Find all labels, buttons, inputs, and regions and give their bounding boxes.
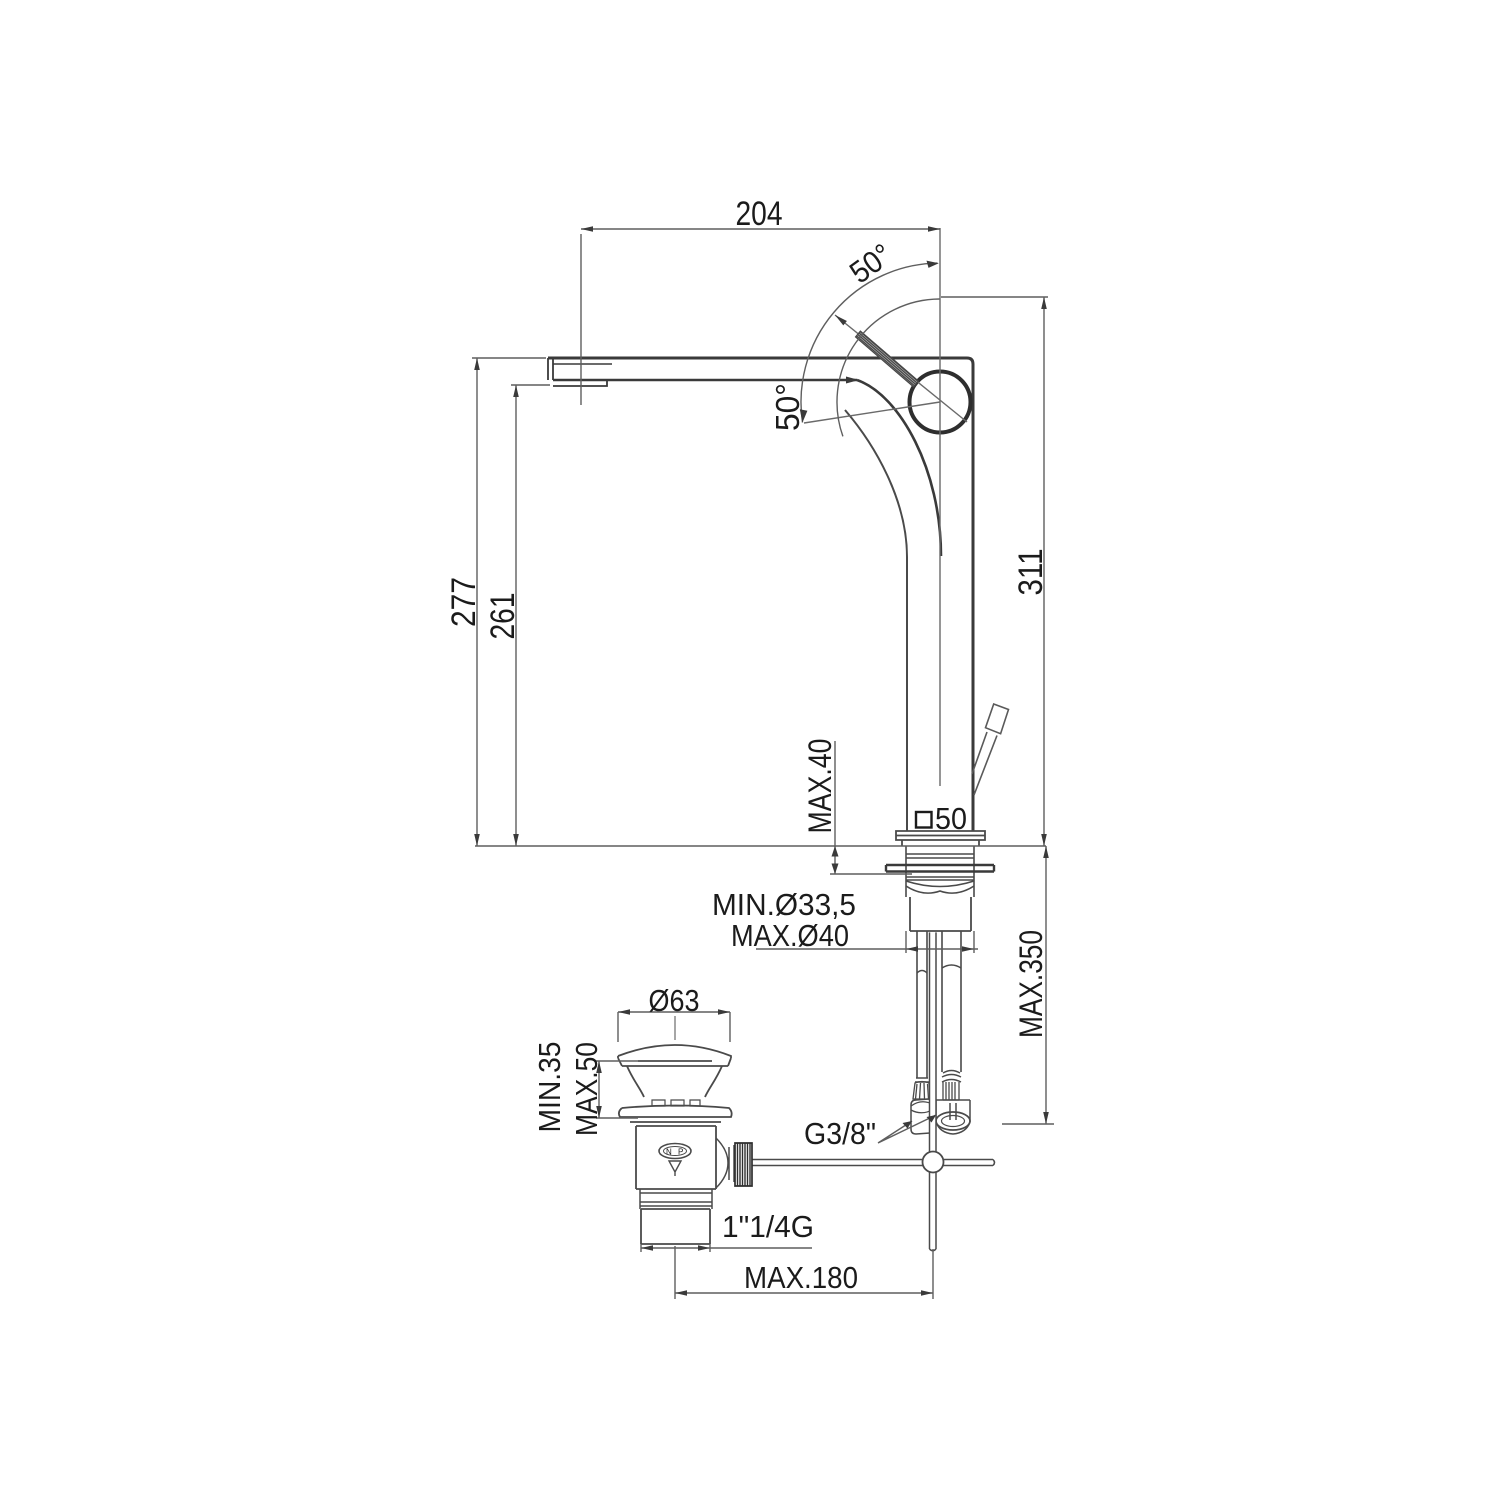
svg-text:50°: 50° — [769, 383, 806, 431]
svg-text:Ø63: Ø63 — [649, 983, 700, 1018]
svg-text:P: P — [678, 1148, 683, 1157]
svg-text:MAX.40: MAX.40 — [802, 739, 838, 834]
svg-text:MAX.Ø40: MAX.Ø40 — [731, 918, 849, 953]
svg-text:MAX.50: MAX.50 — [569, 1042, 604, 1136]
svg-text:50: 50 — [935, 801, 967, 836]
svg-text:261: 261 — [484, 593, 522, 640]
svg-text:MAX.180: MAX.180 — [744, 1260, 858, 1295]
svg-text:277: 277 — [445, 577, 483, 627]
svg-text:311: 311 — [1012, 549, 1050, 596]
svg-text:N: N — [666, 1148, 672, 1157]
svg-text:G3/8": G3/8" — [804, 1116, 876, 1151]
svg-text:MAX.350: MAX.350 — [1013, 930, 1049, 1038]
svg-text:1"1/4G: 1"1/4G — [722, 1209, 814, 1244]
svg-text:MIN.35: MIN.35 — [532, 1042, 567, 1133]
svg-text:MIN.Ø33,5: MIN.Ø33,5 — [712, 887, 856, 922]
svg-text:204: 204 — [736, 195, 783, 233]
